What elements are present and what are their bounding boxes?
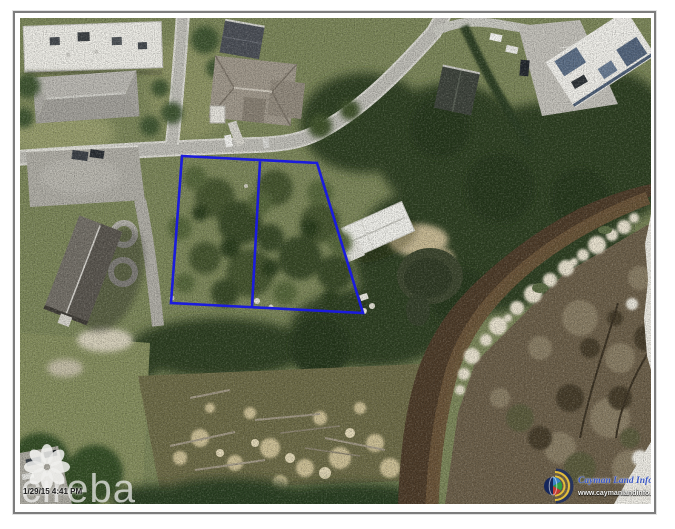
listing-photo-page: cireba 1/29/15 4:41 PM <box>0 0 675 529</box>
provider-name: Cayman Land Info <box>578 476 651 486</box>
provider-url: www.caymanlandinfo.ky <box>578 490 651 497</box>
photo-timestamp: 1/29/15 4:41 PM <box>23 487 82 496</box>
aerial-photo-scene <box>20 18 651 504</box>
aerial-photo: cireba 1/29/15 4:41 PM <box>20 18 651 504</box>
caymanlandinfo-globe-icon <box>540 468 580 504</box>
photo-frame: cireba 1/29/15 4:41 PM <box>13 11 656 514</box>
provider-watermark: Cayman Land Info www.caymanlandinfo.ky <box>540 466 651 504</box>
photo-matte: cireba 1/29/15 4:41 PM <box>15 13 654 512</box>
